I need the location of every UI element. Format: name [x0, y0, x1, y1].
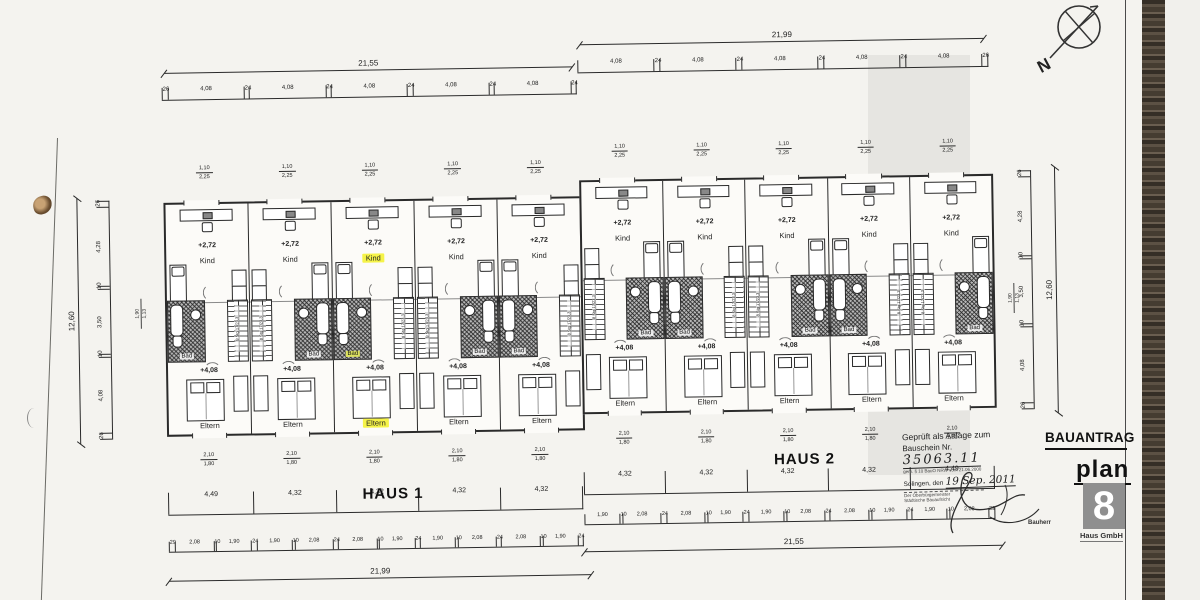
dim-value: 4,08 — [495, 80, 570, 87]
desk-monitor-icon — [203, 212, 213, 219]
room-name-kind: Kind — [449, 252, 464, 261]
desk — [262, 207, 315, 220]
bed-split-line — [868, 367, 869, 393]
level-upper: +2,72 — [828, 215, 909, 223]
bed-pillow — [447, 378, 461, 389]
chair — [699, 198, 710, 208]
bed-pillow — [613, 360, 627, 371]
dim-segment: 1,90 — [871, 509, 906, 520]
dim-value: 4,08 — [824, 54, 900, 61]
dim-value: 1,90 — [257, 539, 291, 545]
double-bed — [443, 375, 482, 418]
window-dimension: 1,102,25 — [766, 132, 800, 157]
window-dim-height: 1,80 — [275, 461, 309, 467]
stair-note: 8 Stg 17/23,3 — [401, 303, 406, 349]
level-lower: +4,08 — [168, 367, 250, 375]
double-bed — [518, 374, 557, 417]
dwelling-unit: +2,72KindBad8 Stg 17/23,3+4,08Eltern — [497, 198, 583, 429]
level-upper: +2,72 — [582, 219, 663, 227]
staircase: 8 Stg 17/23,3 — [227, 300, 249, 362]
bottom-dimension-chain-minor: 1,90102,08242,08101,90241,90102,08242,08… — [584, 508, 995, 525]
dim-segment: 26 — [96, 202, 108, 208]
top-dimension-chain: 4,08244,08244,08244,08244,0826 — [577, 54, 988, 73]
desk — [345, 206, 398, 219]
wardrobe-upper — [749, 245, 764, 262]
room-name-kind: Kind — [283, 255, 298, 264]
window-dim-height: 1,80 — [607, 440, 641, 446]
dim-value: 1,90 — [585, 513, 619, 519]
bed-split-line — [957, 365, 958, 391]
dim-value: 4,08 — [168, 86, 243, 93]
dim-end-tick — [1055, 410, 1064, 417]
bed-pillow — [372, 379, 386, 390]
room-name-eltern: Eltern — [944, 393, 964, 402]
chair — [368, 219, 379, 229]
dim-segment: 4,32 — [665, 470, 747, 493]
chair — [782, 197, 793, 207]
dim-segment: 2,08 — [175, 541, 213, 552]
dim-segment: 4,08 — [99, 358, 112, 434]
window-bottom — [854, 406, 889, 412]
window-top — [515, 195, 552, 201]
door-arc — [940, 256, 957, 273]
bed-split-line — [537, 388, 538, 414]
dim-value: 4,32 — [666, 469, 746, 477]
window-dim-height: 2,25 — [767, 151, 801, 157]
dim-segment: 24 — [570, 81, 576, 93]
bed-pillow — [778, 357, 792, 368]
wardrobe-upper — [251, 269, 266, 286]
bed-split-line — [793, 368, 794, 394]
chair — [864, 196, 875, 206]
dim-segment: 26 — [981, 54, 987, 66]
dim-value: 4,08 — [413, 82, 488, 89]
room-label-lower: Eltern — [913, 393, 994, 403]
door-arc — [775, 259, 792, 276]
dim-segment: 1,90 — [584, 514, 619, 525]
dim-value: 2,08 — [339, 538, 376, 544]
bed-pillow — [958, 354, 972, 365]
bottom-overall-dimension: 21,55 — [585, 545, 1003, 553]
window-dimension: 1,102,25 — [353, 153, 387, 178]
wc — [649, 312, 659, 324]
wc — [835, 309, 845, 321]
window-bottom — [358, 430, 393, 436]
dim-value: 4,08 — [578, 58, 654, 65]
window-dimension: 2,101,80 — [689, 420, 723, 445]
window-dim-width: 1,10 — [857, 141, 874, 148]
room-label-lower: Eltern — [501, 415, 583, 425]
room-name-eltern: Eltern — [283, 420, 303, 429]
dim-value: 2,08 — [458, 536, 495, 542]
window-dim-width: 1,10 — [611, 145, 628, 152]
window-dimension: 1,102,25 — [848, 131, 882, 156]
dim-segment: 26 — [1018, 171, 1030, 177]
door-arc — [203, 284, 220, 301]
window-dim-height: 2,25 — [187, 175, 221, 181]
dim-value: 4,08 — [250, 84, 325, 91]
dim-segment: 2,08 — [666, 512, 705, 523]
desk-monitor-icon — [700, 188, 710, 195]
room-label-lower: Eltern — [749, 395, 830, 405]
dim-segment: 4,08 — [823, 55, 900, 68]
chair — [946, 194, 957, 204]
desk — [595, 186, 648, 199]
bathtub — [812, 278, 826, 310]
bed-split-line — [296, 392, 297, 418]
dwelling-unit: +2,72KindBad8 Stg 17/23,3+4,08Eltern — [746, 178, 832, 409]
bed-pillow — [463, 378, 477, 389]
dim-segment: 3,50 — [98, 290, 111, 355]
dim-value: 1,90 — [543, 534, 577, 540]
wardrobe-lower — [565, 370, 581, 406]
window-dim-width: 1,10 — [775, 142, 792, 149]
level-lower: +4,08 — [417, 363, 499, 371]
room-name-kind: Kind — [363, 253, 384, 262]
bed-pillow — [281, 381, 295, 392]
bathroom: Bad — [665, 276, 704, 339]
window-dim-height: 1,80 — [192, 462, 226, 468]
room-name-eltern: Eltern — [780, 396, 800, 405]
bathroom: Bad — [829, 274, 868, 337]
room-label-lower: Eltern — [667, 397, 748, 407]
room-label-bath: Bad — [628, 330, 664, 337]
dim-segment: 2,08 — [786, 511, 825, 522]
window-bottom — [524, 428, 559, 434]
window-dim-width: 1,10 — [361, 163, 378, 170]
dim-value: 1,90 — [380, 537, 414, 543]
double-bed — [186, 379, 225, 422]
washbasin — [522, 304, 533, 315]
bathtub — [668, 281, 682, 313]
door-arc — [700, 260, 717, 277]
window-dim-height: 2,25 — [519, 170, 553, 176]
room-name-eltern: Eltern — [200, 421, 220, 430]
staircase: 8 Stg 17/23,3 — [724, 276, 746, 338]
window-dim-width: 1,10 — [196, 166, 213, 173]
sill-height-note: 1,901,13 — [134, 299, 147, 329]
window-dimension: 2,101,80 — [771, 419, 805, 444]
stair-note: 8 Stg 17/23,3 — [235, 306, 240, 352]
dim-segment: 4,08 — [659, 58, 736, 71]
washbasin — [852, 283, 863, 294]
room-name-kind: Kind — [862, 230, 877, 239]
wc — [978, 307, 988, 319]
room-name-eltern: Eltern — [698, 397, 718, 406]
bathroom: Bad — [167, 300, 206, 363]
washbasin — [959, 281, 970, 292]
top-overall-dimension: 21,99 — [580, 38, 984, 45]
window-dim-height: 2,25 — [685, 152, 719, 158]
dim-value: 4,08 — [1019, 328, 1026, 403]
dim-segment: 2,08 — [294, 539, 332, 550]
window-dim-width: 1,10 — [693, 143, 710, 150]
bed-pillow — [852, 356, 866, 367]
bed-pillow — [337, 264, 350, 274]
wardrobe-lower — [233, 376, 249, 412]
window-top — [681, 176, 717, 182]
washbasin — [190, 309, 201, 320]
dim-segment: 24 — [577, 535, 582, 545]
stair-note: 8 Stg 17/23,3 — [921, 279, 926, 325]
bathtub — [648, 281, 662, 313]
room-label-lower: Eltern — [252, 419, 334, 429]
dim-segment: 26 — [1022, 403, 1034, 409]
stair-note: 8 Stg 17/23,3 — [732, 282, 737, 328]
dim-value: 26 — [1021, 404, 1027, 409]
plan8-logo-box: 8 — [1083, 483, 1125, 529]
vertical-dimension-chain: 264,08103,50104,2826 — [96, 201, 113, 440]
level-upper: +2,72 — [498, 236, 580, 244]
dim-value: 4,32 — [585, 470, 665, 478]
chair — [202, 222, 213, 232]
wardrobe-upper — [397, 267, 412, 284]
stair-note: 8 Stg 17/23,3 — [567, 300, 572, 346]
wc — [317, 333, 327, 345]
window-dimension: 1,102,25 — [187, 156, 221, 181]
door-arc — [279, 283, 296, 300]
level-lower: +4,08 — [251, 365, 333, 373]
bathroom: Bad — [791, 274, 830, 337]
desk — [842, 182, 895, 195]
dwelling-unit: +2,72KindBad8 Stg 17/23,3+4,08Eltern — [663, 180, 749, 411]
room-name-kind: Kind — [615, 234, 630, 243]
window-top — [846, 174, 882, 180]
logo-company-name: Haus GmbH — [1080, 531, 1123, 542]
window-dim-width: 2,10 — [200, 453, 217, 460]
level-lower: +4,08 — [584, 344, 665, 352]
top-dimension-chain: 264,08244,08244,08244,08244,0824 — [162, 81, 577, 101]
dim-segment: 1,90 — [256, 540, 291, 551]
wardrobe-upper — [563, 264, 578, 281]
double-bed — [774, 354, 813, 397]
room-label-bath: Bad — [462, 349, 498, 356]
room-name-kind: Kind — [200, 256, 215, 265]
level-lower: +4,08 — [912, 339, 993, 347]
dim-segment: 10 — [99, 355, 111, 358]
room-name-kind: Kind — [697, 232, 712, 241]
desk — [511, 204, 564, 217]
bed-split-line — [462, 389, 463, 415]
room-name-kind: Kind — [532, 251, 547, 260]
bed-pillow — [206, 382, 220, 393]
window-dim-height: 2,25 — [849, 150, 883, 156]
bed-pillow — [313, 264, 326, 274]
bathtub — [482, 300, 496, 332]
bottom-overall-dimension: 21,99 — [169, 574, 591, 582]
washbasin — [356, 307, 367, 318]
bed-pillow — [629, 359, 643, 370]
dim-value: 2,08 — [502, 535, 539, 541]
window-dim-height: 1,80 — [357, 459, 391, 465]
sheet-title: BAUANTRAG — [1045, 430, 1127, 450]
room-name-eltern: Eltern — [532, 416, 552, 425]
desk-monitor-icon — [286, 211, 296, 218]
window-dim-width: 2,10 — [366, 450, 383, 457]
double-bed — [848, 353, 887, 396]
house-name: HAUS 2 — [744, 451, 864, 468]
window-dim-width: 2,10 — [862, 428, 879, 435]
desk — [677, 185, 730, 198]
wc — [338, 333, 348, 345]
dim-value: 3,50 — [97, 290, 104, 354]
dim-value: 4,08 — [98, 358, 105, 433]
bed-pillow — [942, 354, 956, 365]
dim-overall-value: 21,99 — [169, 564, 591, 579]
level-upper: +2,72 — [746, 216, 827, 224]
bed-pillow — [190, 382, 204, 393]
dwelling-unit: +2,72KindBad8 Stg 17/23,3+4,08Eltern — [248, 202, 335, 433]
stair-note: 8 Stg 17/23,3 — [897, 279, 902, 325]
room-label-bath: Bad — [957, 325, 993, 332]
wc — [504, 330, 514, 342]
window-dim-width: 1,10 — [527, 161, 544, 168]
dim-value: 10 — [1018, 257, 1024, 259]
bed-pillow — [704, 358, 718, 369]
window-dimension: 1,102,25 — [518, 151, 552, 176]
sill-height-note: 1,901,13 — [1007, 283, 1020, 313]
dim-segment: 2,08 — [622, 513, 661, 524]
window-dim-height: 2,25 — [603, 153, 637, 159]
room-label-bath: Bad — [792, 327, 828, 334]
window-dimension: 2,101,80 — [440, 439, 474, 464]
room-name-kind: Kind — [944, 228, 959, 237]
level-lower: +4,08 — [830, 340, 911, 348]
window-dimension: 2,101,80 — [853, 418, 887, 443]
dim-value: 2,08 — [176, 540, 213, 546]
left-vertical-overall: 12,60 — [68, 198, 84, 444]
staircase: 8 Stg 17/23,3 — [417, 297, 439, 359]
staircase: 8 Stg 17/23,3 — [748, 275, 770, 337]
dim-segment: 26 — [100, 434, 112, 440]
desk — [428, 205, 481, 218]
room-name-kind: Kind — [779, 231, 794, 240]
dim-overall-value: 12,60 — [1044, 167, 1056, 413]
room-label-bath: Bad — [335, 351, 371, 358]
dim-segment: 4,08 — [494, 81, 570, 94]
desk — [759, 184, 812, 197]
wardrobe-lower — [253, 375, 269, 411]
window-dim-width: 2,10 — [780, 429, 797, 436]
level-lower: +4,08 — [666, 343, 747, 351]
wardrobe-lower — [586, 354, 602, 390]
bed-split-line — [205, 393, 206, 419]
door-arc — [535, 279, 552, 296]
bed-pillow — [503, 261, 516, 271]
bed-split-line — [371, 391, 372, 417]
level-lower: +4,08 — [500, 361, 582, 369]
window-dim-height: 1,80 — [771, 438, 805, 444]
double-bed — [684, 355, 723, 398]
dim-value: 1,90 — [749, 510, 783, 516]
window-dim-width: 2,10 — [283, 452, 300, 459]
window-dim-height: 1,80 — [440, 458, 474, 464]
bed-pillow — [834, 240, 847, 250]
washbasin — [464, 305, 475, 316]
bed-pillow — [974, 238, 987, 248]
dim-segment: 2,08 — [830, 510, 869, 521]
dim-value: 1,90 — [217, 540, 251, 546]
dwelling-unit: +2,72KindBad8 Stg 17/23,3+4,08Eltern — [414, 200, 501, 431]
window-dim-width: 1,10 — [279, 165, 296, 172]
dim-segment: 4,08 — [905, 54, 982, 67]
window-top — [349, 197, 386, 203]
desk-monitor-icon — [783, 187, 793, 194]
level-upper: +2,72 — [249, 240, 331, 248]
window-dim-height: 1,80 — [689, 439, 723, 445]
chair — [285, 221, 296, 231]
bathtub — [336, 302, 350, 334]
desk — [924, 181, 977, 194]
bed-split-line — [628, 371, 629, 397]
desk-monitor-icon — [452, 208, 462, 215]
plan8-logo-word: plan — [1074, 458, 1131, 485]
window-top — [183, 200, 220, 206]
bed-pillow — [810, 240, 823, 250]
dwelling-unit: +2,72KindBad8 Stg 17/23,3+4,08Eltern — [331, 201, 418, 432]
dim-segment: 4,28 — [1018, 177, 1031, 257]
bathroom: Bad — [460, 296, 499, 359]
room-label-bath: Bad — [667, 329, 703, 336]
window-top — [928, 172, 964, 178]
window-dimension: 2,101,80 — [523, 438, 557, 463]
bathroom: Bad — [626, 277, 665, 340]
bed-pillow — [794, 357, 808, 368]
door-arc — [865, 258, 882, 275]
vertical-overall-dimension: 12,60 — [1054, 167, 1059, 413]
wardrobe-lower — [895, 349, 911, 385]
dim-segment: 4,32 — [584, 471, 666, 494]
bed-pillow — [171, 267, 184, 277]
dim-overall-value: 21,55 — [164, 56, 572, 70]
double-bed — [352, 376, 391, 419]
window-dimension: 1,102,25 — [435, 152, 469, 177]
wardrobe-upper — [231, 270, 246, 287]
house-name: HAUS 1 — [333, 485, 453, 502]
window-dimension: 1,102,25 — [270, 155, 304, 180]
bed-split-line — [703, 369, 704, 395]
dwelling-unit: +2,72KindBad8 Stg 17/23,3+4,08Eltern — [828, 177, 914, 408]
window-bottom — [441, 429, 476, 435]
bed-pillow — [522, 377, 536, 388]
dim-value: 24 — [578, 534, 582, 540]
dim-segment: 2,08 — [458, 537, 496, 548]
wardrobe-upper — [913, 243, 928, 260]
dim-value: 2,08 — [623, 512, 661, 518]
desk-monitor-icon — [618, 190, 628, 197]
staircase: 8 Stg 17/23,3 — [584, 278, 606, 340]
room-label-lower: Eltern — [169, 420, 251, 430]
dim-segment: 10 — [98, 287, 110, 290]
wardrobe-lower — [915, 349, 931, 385]
house-block: +2,72KindBad8 Stg 17/23,3+4,08Eltern+2,7… — [163, 196, 585, 437]
scanned-plan-sheet: N +2,72KindBad8 Stg 17/23,3+4,08Eltern+2… — [0, 0, 1200, 600]
dim-value: 4,32 — [747, 467, 827, 475]
window-dimension: 2,101,80 — [357, 440, 391, 465]
window-dim-width: 1,10 — [444, 162, 461, 169]
dim-value: 2,08 — [295, 538, 332, 544]
dim-segment: 1,90 — [707, 512, 742, 523]
wardrobe-upper — [729, 246, 744, 263]
dim-value: 4,08 — [660, 57, 736, 64]
dim-value: 4,08 — [906, 53, 982, 60]
bed-pillow — [669, 243, 682, 253]
dim-value: 26 — [95, 202, 101, 207]
signature-flourish — [935, 465, 1045, 540]
level-upper: +2,72 — [166, 242, 248, 250]
house-block: +2,72KindBad8 Stg 17/23,3+4,08Eltern+2,7… — [579, 174, 997, 414]
dim-segment: 4,08 — [249, 85, 325, 98]
